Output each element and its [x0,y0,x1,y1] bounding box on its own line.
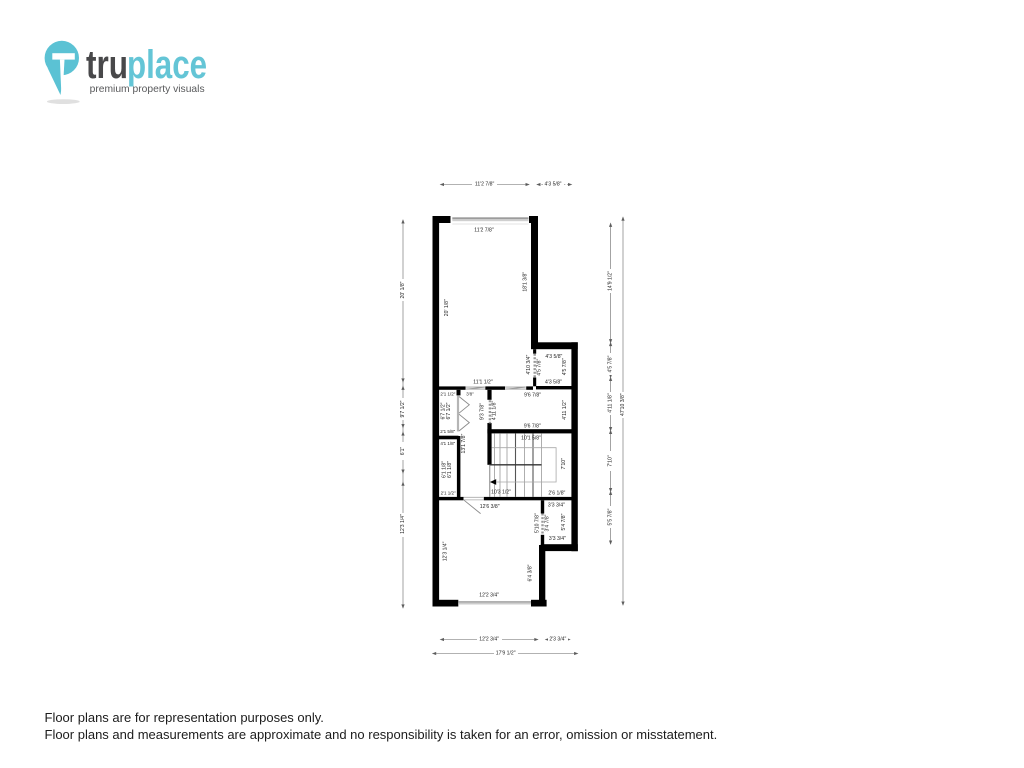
svg-text:4'3 5/8": 4'3 5/8" [545,181,562,187]
svg-text:10'1 5/8": 10'1 5/8" [521,436,541,442]
svg-text:9'6 7/8": 9'6 7/8" [524,392,541,398]
svg-text:10'3 1/2": 10'3 1/2" [491,489,511,495]
svg-text:4'11 1/8": 4'11 1/8" [608,393,614,413]
svg-text:place: place [127,43,207,87]
svg-text:2'1 1/2": 2'1 1/2" [441,490,456,495]
svg-text:9'3 7/8": 9'3 7/8" [479,403,485,420]
svg-text:12'3 1/4": 12'3 1/4" [443,541,449,561]
svg-text:2'6 1/8": 2'6 1/8" [548,490,565,496]
svg-text:4'11 1/2": 4'11 1/2" [562,400,568,420]
svg-text:premium property visuals: premium property visuals [90,83,205,95]
svg-text:12'3 1/4": 12'3 1/4" [400,514,406,534]
svg-text:18'1 3/8": 18'1 3/8" [523,272,529,292]
svg-text:9'6 7/8": 9'6 7/8" [524,424,541,430]
svg-text:4'1 1/8": 4'1 1/8" [440,441,455,446]
svg-text:5'10 7/8": 5'10 7/8" [534,513,540,533]
svg-text:4'3 5/8": 4'3 5/8" [545,380,562,386]
svg-text:17'9 1/2": 17'9 1/2" [496,650,516,656]
svg-text:20' 1/8": 20' 1/8" [444,299,450,316]
svg-text:6'4 3/8": 6'4 3/8" [528,564,534,581]
svg-text:4'5 7/8": 4'5 7/8" [562,358,568,375]
svg-text:12'6 3/8": 12'6 3/8" [480,504,500,510]
svg-text:3'3 3/4": 3'3 3/4" [548,502,565,508]
svg-text:12'2 3/4": 12'2 3/4" [479,636,499,642]
svg-text:11'2 7/8": 11'2 7/8" [474,228,494,234]
svg-text:13'1 7/8": 13'1 7/8" [461,434,467,454]
svg-text:4'5 7/8": 4'5 7/8" [608,355,614,372]
svg-text:47'10 3/8": 47'10 3/8" [620,393,626,416]
svg-text:6'7 1/2": 6'7 1/2" [446,402,452,419]
svg-text:4'11 1/8": 4'11 1/8" [491,401,497,421]
svg-text:2'1 5/8": 2'1 5/8" [440,429,455,434]
svg-text:11'1 1/2": 11'1 1/2" [473,379,493,385]
svg-text:3'3 3/4": 3'3 3/4" [549,536,566,542]
svg-text:2'1 1/2": 2'1 1/2" [440,392,455,397]
svg-text:3'4 7/8": 3'4 7/8" [545,514,551,531]
svg-text:20' 1/8": 20' 1/8" [400,281,406,298]
svg-text:14'9 1/2": 14'9 1/2" [608,271,614,291]
svg-text:6'1": 6'1" [400,447,406,456]
svg-text:4'10 3/4": 4'10 3/4" [526,355,532,375]
svg-text:4'5 7/8": 4'5 7/8" [537,359,543,376]
svg-text:tru: tru [86,43,128,87]
svg-text:5'5 7/8": 5'5 7/8" [608,508,614,525]
svg-text:9'7 1/2": 9'7 1/2" [400,400,406,417]
svg-text:7'10": 7'10" [608,455,614,466]
svg-text:3'8": 3'8" [466,392,474,397]
svg-text:2'3 3/4": 2'3 3/4" [549,636,566,642]
svg-text:7'10": 7'10" [561,458,567,469]
svg-text:5'4 7/8": 5'4 7/8" [561,513,567,530]
svg-text:12'2 3/4": 12'2 3/4" [479,593,499,599]
svg-text:6'1 1/8": 6'1 1/8" [447,461,453,478]
svg-text:4'3 5/8": 4'3 5/8" [545,354,562,360]
svg-text:11'2 7/8": 11'2 7/8" [475,181,495,187]
